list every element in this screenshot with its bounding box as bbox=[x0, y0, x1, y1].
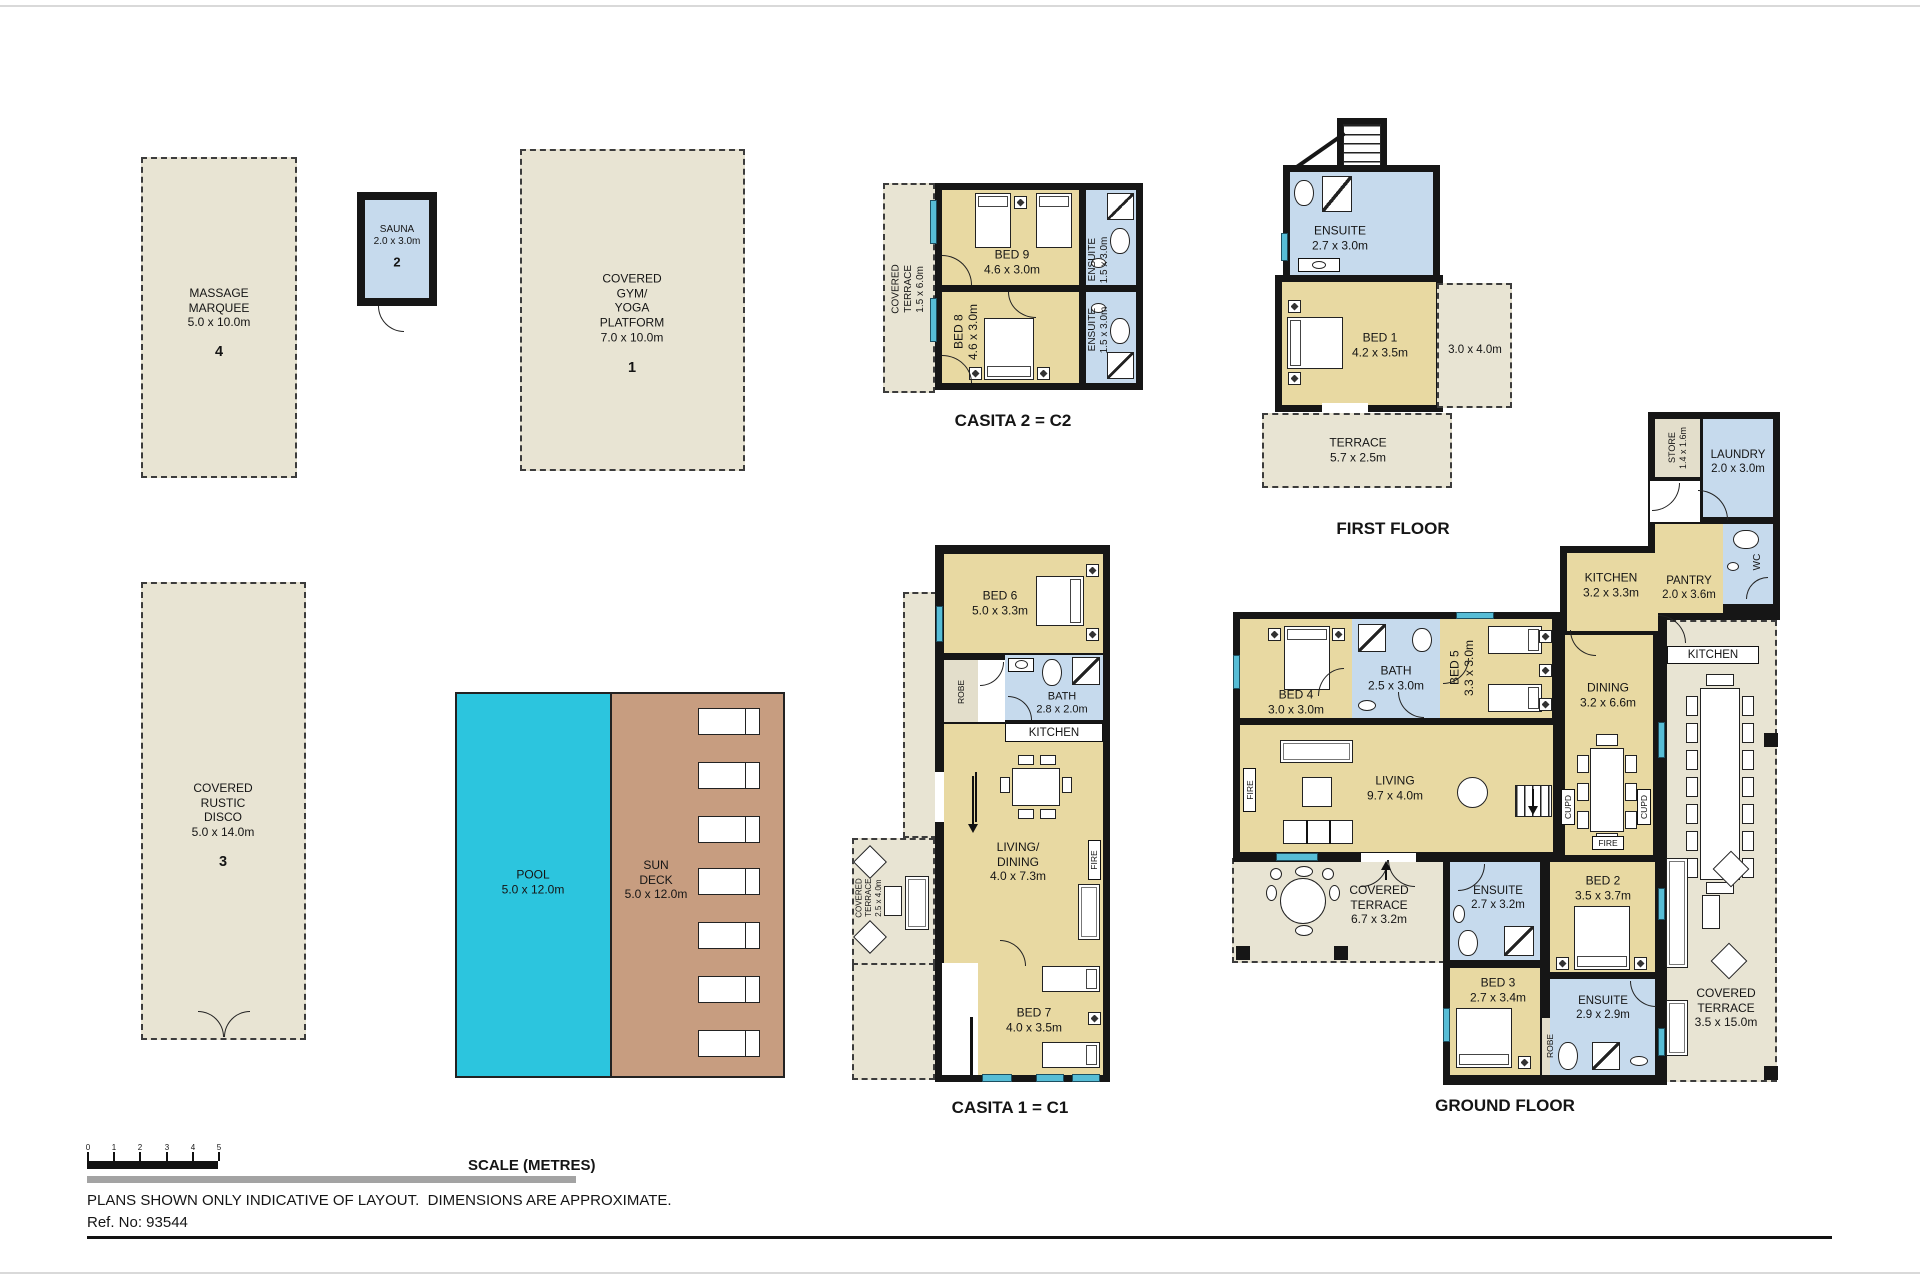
door-leaf bbox=[975, 772, 977, 822]
double-bed-icon bbox=[1287, 317, 1343, 369]
first-floor-title: FIRST FLOOR bbox=[1336, 519, 1449, 539]
ceiling-fan-icon bbox=[1288, 300, 1301, 313]
sink-icon bbox=[1312, 261, 1326, 269]
sofa-icon bbox=[1666, 1000, 1688, 1056]
casita1-side-path bbox=[852, 965, 935, 1080]
coffee-table-icon bbox=[884, 886, 902, 916]
disclaimer-text: PLANS SHOWN ONLY INDICATIVE OF LAYOUT. D… bbox=[87, 1192, 672, 1209]
shower-icon bbox=[1072, 657, 1100, 685]
window bbox=[1443, 1008, 1450, 1042]
ceiling-fan-icon bbox=[1088, 1012, 1101, 1025]
chair-icon bbox=[1686, 777, 1698, 797]
window bbox=[1276, 853, 1318, 861]
casita2-title: CASITA 2 = C2 bbox=[955, 411, 1072, 431]
ceiling-fan-icon bbox=[1268, 628, 1281, 641]
window bbox=[936, 606, 943, 642]
single-bed-icon bbox=[1042, 966, 1100, 992]
gf-ensuite2-label: ENSUITE 2.9 x 2.9m bbox=[1576, 994, 1630, 1022]
casita1-kitchen-label: KITCHEN bbox=[1029, 726, 1079, 740]
double-bed-icon bbox=[1036, 576, 1084, 626]
double-bed-icon bbox=[1574, 906, 1630, 970]
sauna-label: SAUNA 2.0 x 3.0m bbox=[374, 224, 421, 248]
chair-icon bbox=[1625, 811, 1637, 829]
ceiling-fan-icon bbox=[1086, 564, 1099, 577]
sun-deck-label: SUN DECK 5.0 x 12.0m bbox=[625, 858, 688, 902]
sun-lounger-icon bbox=[698, 708, 760, 735]
shower-icon bbox=[1358, 624, 1386, 652]
chair-icon bbox=[1018, 755, 1034, 765]
casita1-terrace-label: COVERED TERRACE 2.5 x 4.0m bbox=[854, 878, 883, 918]
chair-icon bbox=[1040, 809, 1056, 819]
sun-lounger-icon bbox=[698, 922, 760, 949]
gf-terrace-label: COVERED TERRACE 6.7 x 3.2m bbox=[1349, 883, 1408, 927]
scale-tick-label: 1 bbox=[112, 1143, 116, 1152]
scale-tick-label: 5 bbox=[217, 1143, 221, 1152]
sauna-room bbox=[357, 192, 437, 306]
window bbox=[1072, 1074, 1100, 1082]
scale-tick bbox=[87, 1152, 89, 1161]
gf-bed3-label: BED 3 2.7 x 3.4m bbox=[1470, 975, 1526, 1004]
casita1-title: CASITA 1 = C1 bbox=[952, 1098, 1069, 1118]
gf-pantry-label: PANTRY 2.0 x 3.6m bbox=[1662, 574, 1716, 602]
chair-icon bbox=[1577, 755, 1589, 773]
stairs-arrow bbox=[1532, 789, 1534, 807]
chair-icon bbox=[1577, 811, 1589, 829]
dining-table-icon bbox=[1012, 768, 1060, 806]
sun-lounger-icon bbox=[698, 868, 760, 895]
reference-number: Ref. No: 93544 bbox=[87, 1214, 188, 1231]
chair-icon bbox=[1062, 777, 1072, 793]
scale-tick-label: 2 bbox=[138, 1143, 142, 1152]
gf-living-label: LIVING 9.7 x 4.0m bbox=[1367, 773, 1423, 802]
disco-number: 3 bbox=[219, 854, 227, 870]
table-icon bbox=[1302, 777, 1332, 807]
door-gap bbox=[1322, 403, 1368, 412]
gf-terrace-right-label: COVERED TERRACE 3.5 x 15.0m bbox=[1695, 986, 1758, 1030]
single-bed-icon bbox=[1036, 193, 1072, 248]
sofa-icon bbox=[1280, 740, 1353, 763]
gf-bath-label: BATH 2.5 x 3.0m bbox=[1368, 663, 1424, 692]
sofa-icon bbox=[1078, 884, 1100, 940]
ceiling-fan-icon bbox=[1288, 372, 1301, 385]
window bbox=[930, 298, 937, 342]
sofa-icon bbox=[905, 876, 929, 930]
window bbox=[1658, 1028, 1665, 1056]
scale-tick bbox=[139, 1152, 141, 1161]
chair-icon bbox=[1686, 831, 1698, 851]
casita2-bed9-label: BED 9 4.6 x 3.0m bbox=[984, 247, 1040, 276]
window bbox=[1658, 888, 1665, 920]
terrace-post bbox=[1764, 1066, 1778, 1080]
gf-fire-label: FIRE bbox=[1245, 780, 1255, 799]
stairs-arrow-head bbox=[1528, 806, 1538, 815]
chair-icon bbox=[1742, 831, 1754, 851]
casita1-bath-label: BATH 2.8 x 2.0m bbox=[1036, 691, 1087, 718]
ceiling-fan-icon bbox=[1539, 664, 1552, 677]
chair-icon bbox=[1295, 925, 1313, 936]
sun-lounger-icon bbox=[698, 976, 760, 1003]
toilet-icon bbox=[1458, 930, 1478, 956]
ff-ensuite-label: ENSUITE 2.7 x 3.0m bbox=[1312, 223, 1368, 252]
window bbox=[1036, 1074, 1064, 1082]
chair-icon bbox=[1270, 868, 1282, 880]
chair-icon bbox=[1577, 783, 1589, 801]
ceiling-fan-icon bbox=[1332, 628, 1345, 641]
window bbox=[1281, 233, 1288, 261]
chair-icon bbox=[1295, 866, 1313, 877]
sun-lounger-icon bbox=[698, 1030, 760, 1057]
sauna-number: 2 bbox=[393, 255, 400, 270]
toilet-icon bbox=[1412, 628, 1432, 652]
shower-icon bbox=[1322, 176, 1352, 212]
sink-icon bbox=[1727, 562, 1739, 571]
long-table-icon bbox=[1700, 688, 1740, 880]
door-gap bbox=[935, 772, 944, 822]
terrace-post bbox=[1236, 946, 1250, 960]
chair-icon bbox=[1040, 755, 1056, 765]
wall bbox=[970, 1017, 973, 1075]
window bbox=[1233, 655, 1240, 689]
terrace-post bbox=[1334, 946, 1348, 960]
gf-fire-label: FIRE bbox=[1598, 838, 1617, 848]
scale-tick bbox=[113, 1152, 115, 1161]
window bbox=[982, 1074, 1012, 1082]
single-bed-icon bbox=[975, 193, 1011, 248]
round-table-icon bbox=[1457, 777, 1488, 808]
toilet-icon bbox=[1110, 318, 1130, 344]
ceiling-fan-icon bbox=[1518, 1056, 1531, 1069]
toilet-icon bbox=[1294, 180, 1314, 206]
single-bed-icon bbox=[1488, 684, 1542, 712]
chair-icon bbox=[1742, 804, 1754, 824]
footer-rule bbox=[87, 1236, 1832, 1239]
gf-dining-label: DINING 3.2 x 6.6m bbox=[1580, 680, 1636, 709]
window bbox=[1658, 722, 1665, 758]
scale-tick bbox=[166, 1152, 168, 1161]
ceiling-fan-icon bbox=[1037, 367, 1050, 380]
gf-laundry-label: LAUNDRY 2.0 x 3.0m bbox=[1711, 448, 1766, 476]
sink-icon bbox=[1630, 1056, 1648, 1066]
casita1-robe-label: ROBE bbox=[956, 680, 966, 704]
chair-icon bbox=[1625, 783, 1637, 801]
door-arc bbox=[378, 306, 404, 332]
scale-tick-label: 3 bbox=[165, 1143, 169, 1152]
casita2-ensuite-top-label: ENSUITE 1.5 x 3.0m bbox=[1087, 237, 1111, 284]
chair-icon bbox=[1742, 750, 1754, 770]
gf-store-label: STORE 1.4 x 1.6m bbox=[1667, 427, 1689, 469]
toilet-icon bbox=[1110, 228, 1130, 254]
casita1-fire-label: FIRE bbox=[1089, 850, 1099, 869]
north-arrow-stem bbox=[1385, 869, 1387, 880]
chair-icon bbox=[1742, 696, 1754, 716]
ceiling-fan-icon bbox=[1634, 957, 1647, 970]
scale-metres-label: SCALE (METRES) bbox=[468, 1157, 596, 1174]
dining-table-icon bbox=[1590, 748, 1624, 832]
shower-icon bbox=[1107, 193, 1134, 220]
scale-tick bbox=[192, 1152, 194, 1161]
cabinet-icon bbox=[1283, 820, 1353, 844]
entry-arrow bbox=[972, 776, 974, 826]
massage-marquee-label: MASSAGE MARQUEE 5.0 x 10.0m bbox=[188, 286, 251, 330]
ceiling-fan-icon bbox=[1556, 957, 1569, 970]
chair-icon bbox=[1322, 868, 1334, 880]
single-bed-icon bbox=[1042, 1042, 1100, 1068]
ceiling-fan-icon bbox=[1539, 630, 1552, 643]
sofa-icon bbox=[1666, 858, 1688, 968]
chair-icon bbox=[1686, 696, 1698, 716]
chair-icon bbox=[1000, 777, 1010, 793]
chair-icon bbox=[1266, 885, 1277, 901]
page-top-rule bbox=[0, 5, 1920, 7]
window bbox=[1456, 612, 1494, 619]
gf-bed2-label: BED 2 3.5 x 3.7m bbox=[1575, 873, 1631, 902]
double-bed-icon bbox=[984, 318, 1034, 380]
single-bed-icon bbox=[1488, 626, 1542, 654]
disco-label: COVERED RUSTIC DISCO 5.0 x 14.0m bbox=[192, 781, 255, 840]
scale-bar bbox=[87, 1161, 218, 1169]
chair-icon bbox=[1018, 809, 1034, 819]
ff-open-area-label: 3.0 x 4.0m bbox=[1448, 343, 1502, 357]
chair-icon bbox=[1686, 723, 1698, 743]
toilet-icon bbox=[1558, 1042, 1578, 1070]
gf-cupd-label: CUPD bbox=[1639, 795, 1649, 819]
chair-icon bbox=[1686, 750, 1698, 770]
floor-plan-page: MASSAGE MARQUEE 5.0 x 10.0m 4 SAUNA 2.0 … bbox=[0, 0, 1920, 1280]
chair-icon bbox=[1706, 674, 1734, 686]
massage-marquee-number: 4 bbox=[215, 344, 223, 360]
casita1-living-label: LIVING/ DINING 4.0 x 7.3m bbox=[990, 840, 1046, 884]
gf-ensuite3-label: ENSUITE 2.7 x 3.2m bbox=[1471, 884, 1525, 912]
casita2-ensuite-bottom-label: ENSUITE 1.5 x 3.0m bbox=[1087, 307, 1111, 354]
entry-arrow-head bbox=[968, 824, 978, 833]
sink-icon bbox=[1358, 700, 1376, 711]
scale-tick-label: 0 bbox=[86, 1143, 90, 1152]
divider-bar bbox=[87, 1176, 576, 1183]
cabinet-divider bbox=[1306, 820, 1308, 844]
ground-floor-title: GROUND FLOOR bbox=[1435, 1096, 1575, 1116]
gym-yoga-label: COVERED GYM/ YOGA PLATFORM 7.0 x 10.0m bbox=[600, 271, 664, 344]
gf-bed4-label: BED 4 3.0 x 3.0m bbox=[1268, 687, 1324, 716]
ff-terrace-label: TERRACE 5.7 x 2.5m bbox=[1329, 435, 1386, 464]
chair-icon bbox=[1625, 755, 1637, 773]
pool-label: POOL 5.0 x 12.0m bbox=[502, 867, 565, 896]
bed1-label: BED 1 4.2 x 3.5m bbox=[1352, 330, 1408, 359]
scale-tick bbox=[218, 1152, 220, 1161]
casita1-side-path bbox=[903, 592, 937, 838]
gf-cupd-label: CUPD bbox=[1563, 795, 1573, 819]
chair-icon bbox=[1742, 777, 1754, 797]
casita1-bed7-label: BED 7 4.0 x 3.5m bbox=[1006, 1005, 1062, 1034]
ceiling-fan-icon bbox=[1014, 196, 1027, 209]
casita2-bed8-label: BED 8 4.6 x 3.0m bbox=[951, 304, 980, 360]
toilet-icon bbox=[1042, 659, 1062, 686]
page-bottom-rule bbox=[0, 1272, 1920, 1274]
chair-icon bbox=[1329, 885, 1340, 901]
sink-icon bbox=[1015, 660, 1028, 669]
gf-robe-label: ROBE bbox=[1545, 1034, 1555, 1058]
terrace-post bbox=[1764, 733, 1778, 747]
casita2-terrace-label: COVERED TERRACE 1.5 x 6.0m bbox=[891, 264, 928, 313]
toilet-icon bbox=[1733, 530, 1759, 549]
cabinet-divider bbox=[1329, 820, 1331, 844]
window bbox=[930, 200, 937, 244]
casita1-bed6-label: BED 6 5.0 x 3.3m bbox=[972, 588, 1028, 617]
side-table-icon bbox=[1702, 895, 1720, 929]
chair-icon bbox=[1596, 734, 1618, 746]
double-bed-icon bbox=[1456, 1008, 1512, 1068]
sun-lounger-icon bbox=[698, 762, 760, 789]
gf-outdoor-kitchen-label: KITCHEN bbox=[1688, 648, 1738, 662]
sink-icon bbox=[1453, 905, 1465, 923]
scale-tick-label: 4 bbox=[191, 1143, 195, 1152]
shower-icon bbox=[1107, 352, 1134, 379]
ceiling-fan-icon bbox=[1539, 698, 1552, 711]
shower-icon bbox=[1504, 926, 1534, 956]
chair-icon bbox=[1686, 804, 1698, 824]
chair-icon bbox=[1742, 723, 1754, 743]
ceiling-fan-icon bbox=[1086, 628, 1099, 641]
gf-kitchen-label: KITCHEN 3.2 x 3.3m bbox=[1583, 570, 1639, 599]
sun-lounger-icon bbox=[698, 816, 760, 843]
shower-icon bbox=[1592, 1042, 1620, 1070]
round-table-icon bbox=[1280, 878, 1326, 924]
gf-wc-label: WC bbox=[1752, 554, 1764, 571]
gym-yoga-number: 1 bbox=[628, 360, 636, 376]
